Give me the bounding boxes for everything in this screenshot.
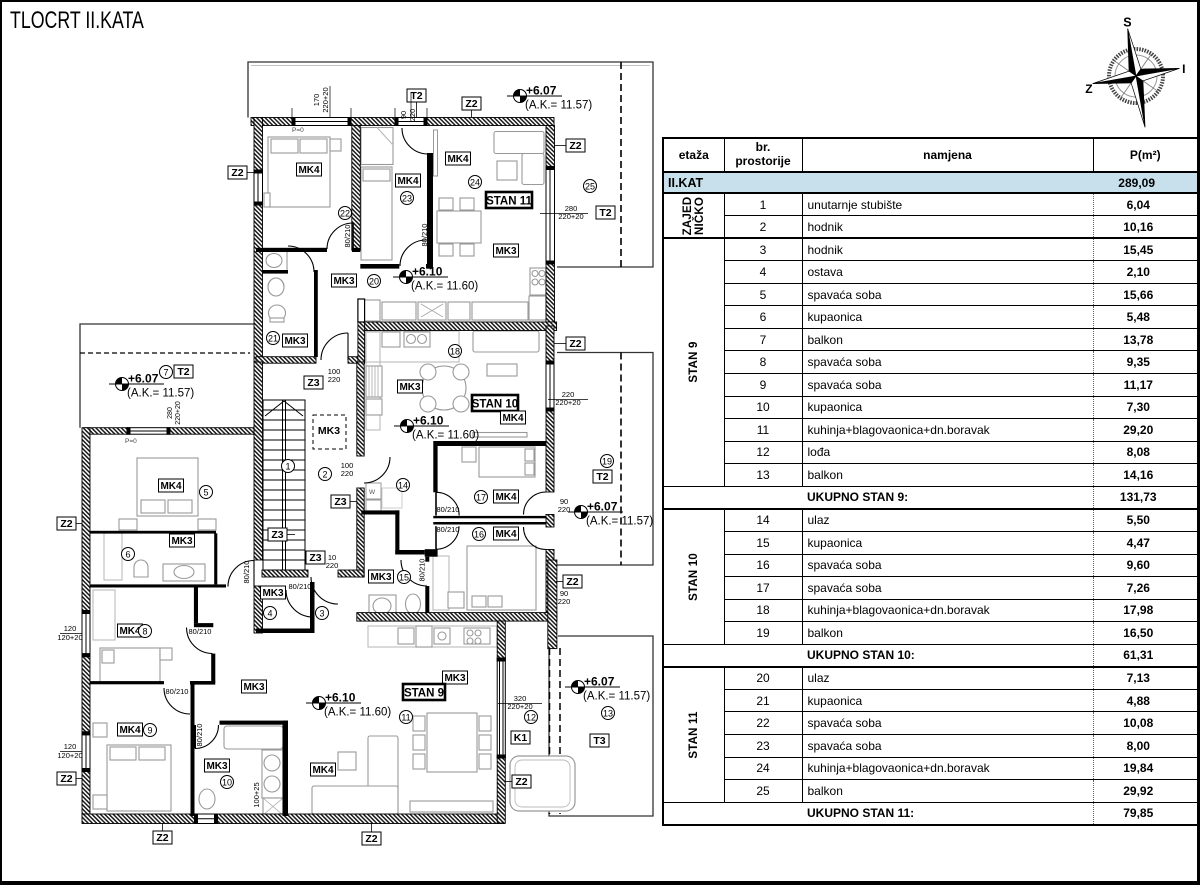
svg-text:220: 220 (408, 109, 417, 122)
svg-text:9: 9 (147, 726, 152, 736)
svg-text:1: 1 (285, 462, 290, 472)
svg-text:MK3: MK3 (333, 276, 355, 287)
svg-text:23: 23 (402, 194, 412, 204)
svg-text:+6.10: +6.10 (325, 691, 356, 705)
svg-text:Z2: Z2 (365, 833, 377, 845)
svg-text:16: 16 (474, 530, 484, 540)
svg-text:2: 2 (322, 470, 327, 480)
svg-text:(A.K.= 11.57): (A.K.= 11.57) (586, 516, 653, 528)
svg-text:MK3: MK3 (399, 382, 421, 393)
svg-text:Z2: Z2 (231, 167, 243, 179)
svg-text:220+20: 220+20 (321, 87, 330, 112)
svg-text:Z3: Z3 (334, 496, 346, 508)
svg-text:19: 19 (602, 457, 612, 467)
svg-text:7: 7 (163, 368, 168, 378)
svg-text:80/210: 80/210 (195, 724, 204, 747)
svg-text:MK3: MK3 (206, 761, 228, 772)
svg-text:17: 17 (476, 493, 486, 503)
svg-text:220: 220 (558, 597, 571, 606)
svg-text:MK3: MK3 (262, 588, 284, 599)
svg-text:+6.07: +6.07 (587, 500, 618, 514)
svg-text:MK3: MK3 (171, 536, 193, 547)
svg-text:11: 11 (401, 713, 410, 723)
svg-text:170: 170 (312, 94, 321, 107)
svg-text:80/210: 80/210 (418, 559, 427, 582)
svg-text:MK4: MK4 (502, 413, 524, 424)
svg-text:Z2: Z2 (60, 773, 72, 785)
svg-text:T2: T2 (177, 366, 189, 378)
svg-text:8: 8 (142, 627, 147, 637)
svg-text:T2: T2 (599, 207, 611, 219)
svg-text:220+20: 220+20 (175, 401, 182, 425)
svg-text:MK4: MK4 (119, 725, 141, 736)
svg-text:MK3: MK3 (284, 336, 306, 347)
svg-text:10: 10 (222, 778, 232, 788)
svg-text:(A.K.= 11.57): (A.K.= 11.57) (127, 388, 194, 400)
svg-text:120: 120 (64, 742, 77, 751)
svg-text:120+20: 120+20 (57, 751, 82, 760)
svg-text:4: 4 (267, 609, 272, 619)
svg-text:220: 220 (326, 561, 339, 570)
svg-text:80/210: 80/210 (242, 561, 251, 584)
svg-text:80/210: 80/210 (289, 582, 312, 591)
svg-text:+6.07: +6.07 (584, 675, 615, 689)
svg-text:220: 220 (558, 505, 571, 514)
svg-text:S: S (1123, 15, 1131, 29)
svg-text:90: 90 (399, 111, 408, 119)
svg-text:MK3: MK3 (444, 673, 466, 684)
svg-text:280: 280 (167, 407, 174, 419)
svg-text:80/210: 80/210 (437, 505, 460, 514)
svg-text:(A.K.= 11.57): (A.K.= 11.57) (525, 100, 592, 112)
svg-text:5: 5 (203, 488, 208, 498)
svg-text:20: 20 (369, 277, 379, 287)
svg-text:15: 15 (399, 573, 409, 583)
svg-text:14: 14 (398, 481, 408, 491)
svg-text:Z2: Z2 (515, 776, 527, 788)
svg-text:Z3: Z3 (307, 377, 319, 389)
svg-text:(A.K.= 11.60): (A.K.= 11.60) (324, 707, 391, 719)
svg-text:STAN 9: STAN 9 (404, 688, 444, 700)
svg-text:220: 220 (341, 469, 354, 478)
svg-text:Z2: Z2 (566, 576, 578, 588)
svg-text:Z2: Z2 (569, 140, 581, 152)
svg-text:MK4: MK4 (495, 529, 517, 540)
svg-text:I: I (1182, 62, 1185, 76)
svg-text:MK4: MK4 (495, 492, 517, 503)
svg-text:(A.K.= 11.57): (A.K.= 11.57) (583, 691, 650, 703)
svg-text:MK4: MK4 (119, 626, 141, 637)
svg-text:21: 21 (268, 334, 278, 344)
svg-text:T2: T2 (410, 90, 422, 102)
svg-text:STAN 11: STAN 11 (486, 196, 532, 208)
svg-text:+6.10: +6.10 (413, 414, 444, 428)
svg-text:220: 220 (328, 375, 341, 384)
svg-text:Z: Z (1085, 82, 1092, 96)
svg-text:MK4: MK4 (298, 165, 320, 176)
svg-text:+6.07: +6.07 (128, 372, 159, 386)
svg-text:+6.10: +6.10 (412, 265, 443, 279)
svg-text:80/210: 80/210 (189, 627, 212, 636)
svg-text:P=0: P=0 (292, 127, 304, 134)
svg-text:MK4: MK4 (160, 481, 182, 492)
svg-text:Z2: Z2 (569, 338, 581, 350)
svg-text:80/210: 80/210 (437, 525, 460, 534)
svg-text:80/210: 80/210 (166, 687, 189, 696)
svg-text:Z3: Z3 (309, 552, 321, 564)
svg-text:+6.07: +6.07 (526, 84, 557, 98)
svg-text:12: 12 (526, 713, 536, 723)
svg-text:6: 6 (125, 550, 130, 560)
svg-text:3: 3 (319, 609, 324, 619)
svg-text:120+20: 120+20 (57, 633, 82, 642)
svg-text:(A.K.= 11.60): (A.K.= 11.60) (412, 430, 479, 442)
svg-text:24: 24 (470, 178, 480, 188)
svg-text:(A.K.= 11.60): (A.K.= 11.60) (411, 281, 478, 293)
svg-text:13: 13 (603, 709, 613, 719)
svg-text:MK3: MK3 (370, 572, 392, 583)
svg-text:T3: T3 (593, 735, 605, 747)
svg-text:MK4: MK4 (447, 154, 469, 165)
svg-text:MK3: MK3 (318, 425, 340, 437)
svg-text:Z2: Z2 (60, 518, 72, 530)
svg-text:K1: K1 (514, 732, 528, 744)
svg-text:P=0: P=0 (125, 438, 137, 445)
svg-text:T2: T2 (596, 471, 608, 483)
svg-text:MK3: MK3 (243, 682, 265, 693)
svg-text:25: 25 (585, 182, 595, 192)
svg-text:80/210: 80/210 (420, 224, 429, 247)
svg-text:MK4: MK4 (312, 765, 334, 776)
svg-text:22: 22 (340, 209, 350, 219)
svg-text:Z3: Z3 (271, 529, 283, 541)
svg-text:120: 120 (64, 624, 77, 633)
svg-text:MK4: MK4 (397, 176, 419, 187)
svg-text:Z2: Z2 (465, 98, 477, 110)
svg-text:Z2: Z2 (156, 832, 168, 844)
svg-text:MK3: MK3 (495, 246, 517, 257)
svg-text:STAN 10: STAN 10 (472, 399, 518, 411)
svg-text:100+25: 100+25 (252, 782, 261, 807)
svg-text:80/210: 80/210 (343, 225, 352, 248)
svg-text:18: 18 (450, 347, 460, 357)
svg-text:W: W (369, 489, 376, 496)
